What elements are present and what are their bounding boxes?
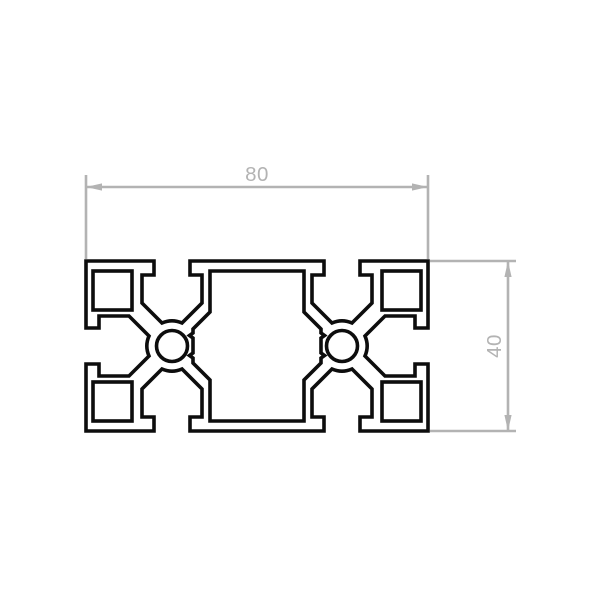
dimension-width <box>86 175 428 259</box>
height-arrow-bottom <box>504 415 511 431</box>
core-hole-left <box>157 331 188 362</box>
width-arrow-right <box>412 183 428 190</box>
corner-hole-top-left <box>93 271 132 310</box>
profile-outline <box>86 261 428 431</box>
corner-hole-top-right <box>382 271 421 310</box>
core-hole-right <box>327 331 358 362</box>
height-arrow-top <box>504 261 511 277</box>
center-cavity-outline <box>190 271 325 421</box>
corner-hole-bottom-right <box>382 382 421 421</box>
height-dimension-label: 40 <box>483 334 506 358</box>
width-arrow-left <box>86 183 102 190</box>
corner-hole-bottom-left <box>93 382 132 421</box>
drawing-canvas: 80 40 <box>0 0 600 600</box>
technical-drawing: 80 40 <box>0 0 600 600</box>
profile-section <box>86 261 428 431</box>
width-dimension-label: 80 <box>245 163 269 186</box>
